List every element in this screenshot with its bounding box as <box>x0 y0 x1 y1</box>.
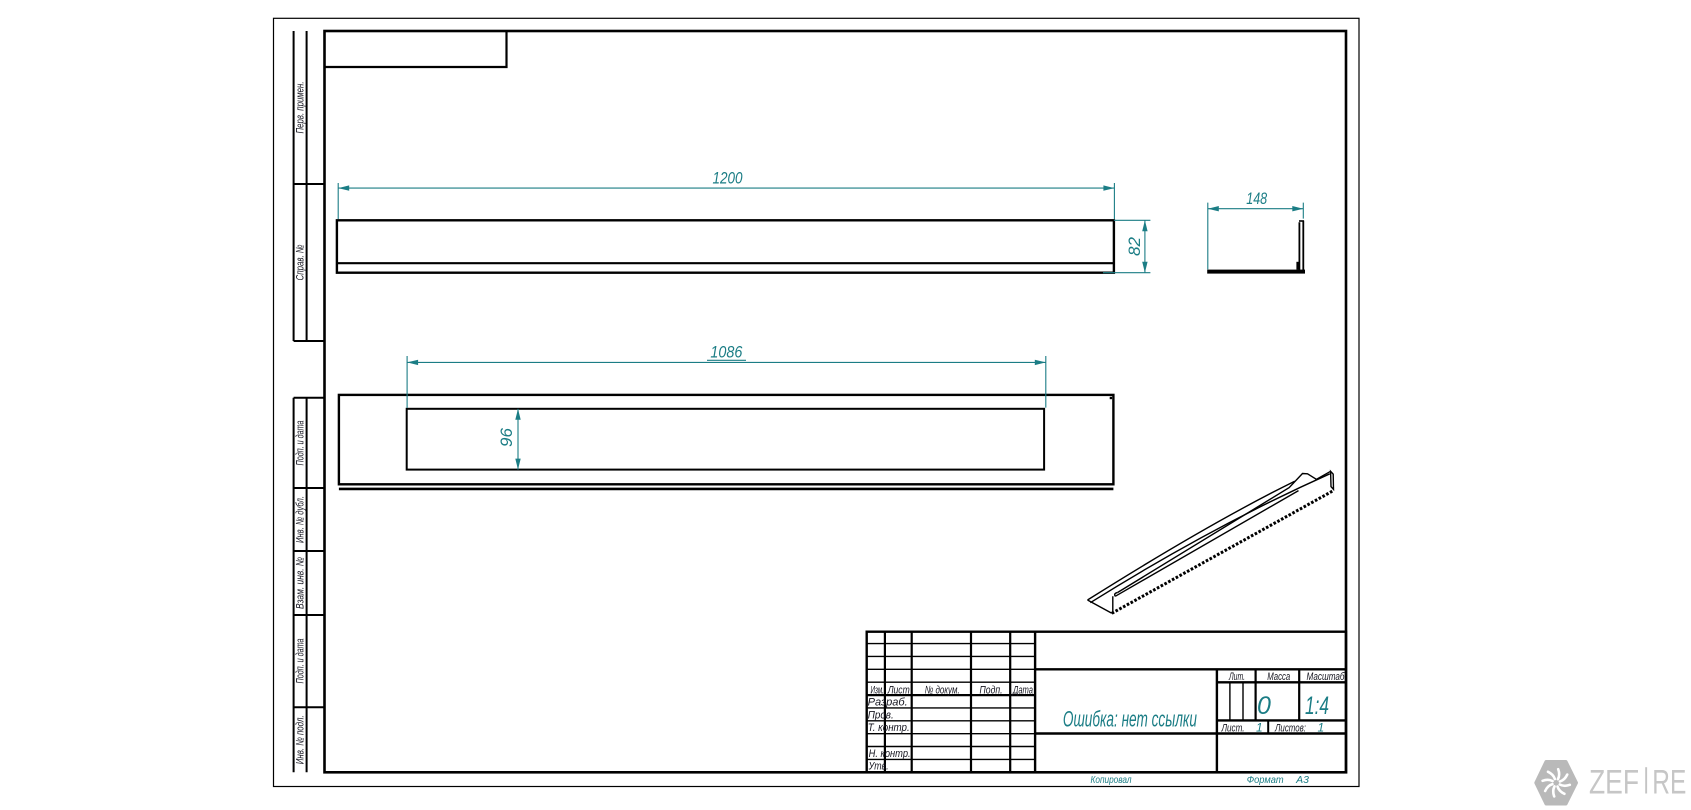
svg-text:1: 1 <box>1318 720 1325 734</box>
svg-text:Лист.: Лист. <box>1221 722 1245 734</box>
svg-text:Масса: Масса <box>1267 671 1290 683</box>
svg-text:1200: 1200 <box>713 169 743 188</box>
svg-text:Лит.: Лит. <box>1228 671 1245 683</box>
svg-text:148: 148 <box>1246 189 1267 208</box>
svg-text:82: 82 <box>1125 237 1144 256</box>
svg-text:ZEF: ZEF <box>1589 764 1639 802</box>
svg-text:Перв. примен.: Перв. примен. <box>295 82 307 134</box>
svg-text:96: 96 <box>497 428 516 447</box>
svg-text:А3: А3 <box>1295 774 1309 786</box>
svg-text:Подп. и дата: Подп. и дата <box>295 639 307 684</box>
svg-text:Листов:: Листов: <box>1274 722 1306 734</box>
svg-text:Взам. инв. №: Взам. инв. № <box>295 557 307 609</box>
svg-text:Формат: Формат <box>1247 774 1284 786</box>
svg-text:Т. контр.: Т. контр. <box>868 722 910 734</box>
svg-text:RE: RE <box>1652 764 1686 802</box>
svg-text:Подп. и дата: Подп. и дата <box>295 421 307 466</box>
svg-text:Лист: Лист <box>887 684 910 696</box>
svg-text:Справ. №: Справ. № <box>295 244 307 280</box>
svg-text:1: 1 <box>1256 720 1263 734</box>
svg-text:0: 0 <box>1257 692 1271 720</box>
svg-text:1086: 1086 <box>710 343 742 362</box>
svg-text:Инв. № дубл.: Инв. № дубл. <box>295 496 307 543</box>
svg-text:Пров.: Пров. <box>868 709 894 721</box>
svg-text:Подп.: Подп. <box>980 684 1003 696</box>
svg-text:Масштаб: Масштаб <box>1307 671 1346 683</box>
svg-text:Н. контр.: Н. контр. <box>869 748 911 760</box>
svg-text:Инв. № подл.: Инв. № подл. <box>295 715 307 764</box>
svg-text:1:4: 1:4 <box>1305 692 1329 720</box>
svg-text:Разраб.: Разраб. <box>868 696 908 708</box>
svg-text:№ докум.: № докум. <box>925 684 960 696</box>
svg-text:Ошибка: нет ссылки: Ошибка: нет ссылки <box>1063 707 1197 732</box>
svg-text:Изм.: Изм. <box>870 684 884 696</box>
svg-text:Дата: Дата <box>1012 684 1033 696</box>
svg-text:Копировал: Копировал <box>1091 774 1132 786</box>
svg-text:Утв.: Утв. <box>868 761 889 773</box>
